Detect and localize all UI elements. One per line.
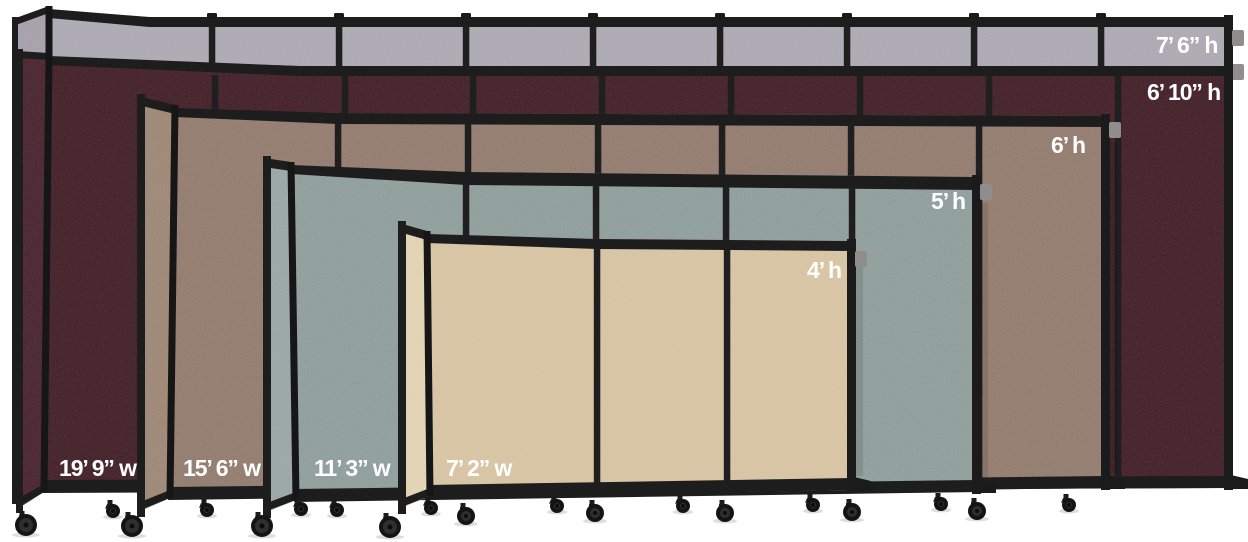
svg-text:6’ 10” h: 6’ 10” h [1147,79,1220,105]
svg-text:7’ 6” h: 7’ 6” h [1156,32,1217,58]
svg-text:5’ h: 5’ h [931,188,965,214]
svg-text:19’ 9” w: 19’ 9” w [59,455,137,481]
svg-text:6’ h: 6’ h [1051,132,1085,158]
svg-text:15’ 6” w: 15’ 6” w [183,455,261,481]
svg-text:11’ 3” w: 11’ 3” w [314,455,391,481]
svg-text:7’ 2” w: 7’ 2” w [446,455,512,481]
svg-text:4’ h: 4’ h [807,257,841,283]
